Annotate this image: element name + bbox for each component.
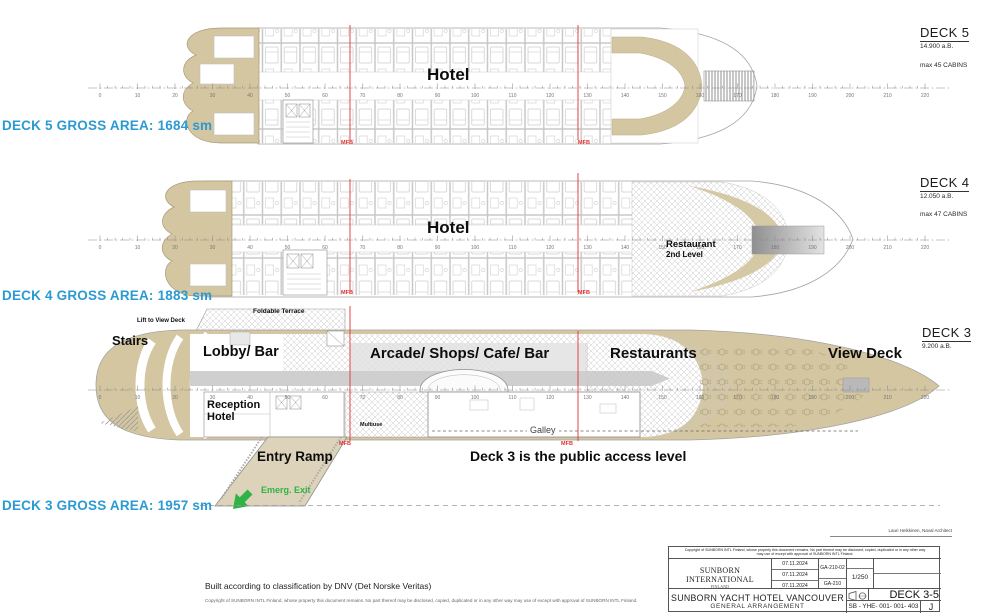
svg-text:120: 120 [546,93,555,99]
svg-text:60: 60 [322,245,328,251]
svg-text:20: 20 [172,395,178,401]
scale-value: 1/250 [847,569,873,587]
svg-text:30: 30 [210,245,216,251]
svg-text:210: 210 [883,93,892,99]
svg-text:150: 150 [658,395,667,401]
svg-text:130: 130 [583,93,592,99]
date-row: 07.11.2024 [772,581,818,589]
svg-text:110: 110 [509,245,517,251]
svg-text:0: 0 [99,93,102,99]
approval-row [874,559,941,574]
deck4-area-label: Hotel [427,219,470,237]
deck3-lobby-label: Lobby/ Bar [203,345,279,360]
svg-text:130: 130 [583,395,592,401]
svg-text:90: 90 [435,395,441,401]
svg-text:180: 180 [771,395,780,401]
svg-text:40: 40 [247,245,253,251]
deck3-restaurants-label: Restaurants [610,346,697,362]
svg-text:210: 210 [883,395,892,401]
svg-text:60: 60 [322,395,328,401]
svg-text:20: 20 [172,93,178,99]
svg-text:150: 150 [658,93,667,99]
doc-number-cell: GA-210-02 GA-210 [819,559,847,589]
deck3-view-deck-label: View Deck [828,346,902,362]
projection-symbol-icon [847,590,869,601]
svg-text:110: 110 [509,93,517,99]
deck4-restaurant-sublabel: 2nd Level [666,251,703,259]
svg-text:10: 10 [135,245,141,251]
deck5-elevation: 14.900 a.B. [920,44,953,51]
svg-text:160: 160 [696,395,705,401]
svg-text:120: 120 [546,245,555,251]
svg-text:50: 50 [285,245,291,251]
svg-text:120: 120 [546,395,555,401]
mfb-marker: MFB [578,291,590,297]
svg-text:50: 50 [285,395,291,401]
svg-text:80: 80 [397,395,403,401]
deck-plans-drawing: 0102030405060708090100110120130140150160… [0,0,988,614]
svg-text:50: 50 [285,93,291,99]
deck5-title: DECK 5 [920,26,969,42]
svg-text:80: 80 [397,245,403,251]
deck4-restaurant-label: Restaurant [666,240,716,250]
deck5-cabin-count: max 45 CABINS [920,63,967,70]
architect-note: Lauri Heikkinen, Naval Architect [830,529,952,537]
mfb-marker: MFB [341,291,353,297]
svg-text:60: 60 [322,93,328,99]
deck3-arcade-label: Arcade/ Shops/ Cafe/ Bar [370,346,549,362]
deck3-reception-label: Reception Hotel [207,400,260,423]
footer-copyright: Copyright of SUNBORN INTL Finland, whose… [205,599,637,604]
title-block-copyright: Copyright of SUNBORN INTL Finland, whose… [669,547,941,559]
deck4-elevation: 12.050 a.B. [920,194,953,201]
approval-row [874,574,941,589]
svg-text:170: 170 [733,395,742,401]
deck3-multiuse-label: Multiuse [360,423,382,429]
svg-text:10: 10 [135,93,141,99]
svg-text:90: 90 [435,245,441,251]
svg-text:200: 200 [846,245,855,251]
deck3-gross-area: DECK 3 GROSS AREA: 1957 sm [2,499,212,513]
svg-text:100: 100 [471,245,480,251]
deck3-title: DECK 3 [922,326,971,342]
mfb-marker: MFB [339,442,351,448]
sheet-name: DECK 3-5 [869,589,941,601]
svg-text:180: 180 [771,245,780,251]
title-block: Copyright of SUNBORN INTL Finland, whose… [668,546,940,612]
svg-text:190: 190 [808,245,817,251]
mfb-marker: MFB [561,442,573,448]
svg-text:0: 0 [99,245,102,251]
date-row: 07.11.2024 [772,570,818,581]
projection-symbol-cell [847,589,869,601]
mfb-marker: MFB [578,141,590,147]
svg-text:140: 140 [621,245,630,251]
svg-text:100: 100 [471,93,480,99]
svg-text:220: 220 [921,245,930,251]
svg-text:220: 220 [921,93,930,99]
deck3-foldable-terrace-label: Foldable Terrace [253,309,305,316]
date-row: 07.11.2024 [772,559,818,570]
svg-text:40: 40 [247,93,253,99]
doc-number-1: GA-210-02 [819,559,846,579]
svg-text:110: 110 [509,395,517,401]
svg-text:190: 190 [808,395,817,401]
svg-text:20: 20 [172,245,178,251]
svg-text:70: 70 [360,395,366,401]
deck3-galley-label: Galley [527,426,559,435]
deck-4-hull: 0102030405060708090100110120130140150160… [88,173,952,297]
drawing-number: SB - YHE- 001- 001- 403 [847,601,921,613]
deck5-area-label: Hotel [427,66,470,84]
deck3-public-access-note: Deck 3 is the public access level [470,449,686,464]
drawing-name: GENERAL ARRANGEMENT [669,603,846,610]
deck4-cabin-count: max 47 CABINS [920,212,967,219]
svg-text:200: 200 [846,93,855,99]
company-name: SUNBORN INTERNATIONAL [669,566,771,584]
deck3-stairs-label: Stairs [112,334,148,348]
scale-cell: 1/250 [847,559,874,589]
svg-text:130: 130 [583,245,592,251]
svg-text:160: 160 [696,93,705,99]
doc-number-2: GA-210 [819,579,846,589]
svg-text:180: 180 [771,93,780,99]
reception-line1: Reception [207,400,260,412]
svg-text:190: 190 [808,93,817,99]
svg-text:90: 90 [435,93,441,99]
svg-text:220: 220 [921,395,930,401]
project-title-cell: SUNBORN YACHT HOTEL VANCOUVER GENERAL AR… [669,589,847,613]
svg-text:10: 10 [135,395,141,401]
project-name: SUNBORN YACHT HOTEL VANCOUVER [669,593,846,603]
revision-letter: J [921,601,941,613]
svg-text:210: 210 [883,245,892,251]
svg-text:30: 30 [210,93,216,99]
company-cell: SUNBORN INTERNATIONAL FINLAND [669,559,772,589]
svg-text:70: 70 [360,245,366,251]
approval-cells [874,559,941,589]
deck3-lift-label: Lift to View Deck [137,318,185,324]
svg-text:170: 170 [733,93,742,99]
classification-note: Built according to classification by DNV… [205,582,431,591]
svg-text:140: 140 [621,93,630,99]
deck3-emerg-exit-label: Emerg. Exit [261,486,311,495]
dates-cell: 07.11.2024 07.11.2024 07.11.2024 [772,559,819,589]
svg-text:100: 100 [471,395,480,401]
scale-header [847,559,873,569]
deck-5-hull: 0102030405060708090100110120130140150160… [88,25,952,144]
svg-text:170: 170 [733,245,742,251]
deck3-entry-ramp-label: Entry Ramp [257,450,333,464]
svg-text:70: 70 [360,93,366,99]
svg-text:200: 200 [846,395,855,401]
deck4-gross-area: DECK 4 GROSS AREA: 1883 sm [2,289,212,303]
svg-text:140: 140 [621,395,630,401]
general-arrangement-sheet: 0102030405060708090100110120130140150160… [0,0,988,614]
deck5-gross-area: DECK 5 GROSS AREA: 1684 sm [2,119,212,133]
deck3-elevation: 9.200 a.B. [922,344,952,351]
svg-text:0: 0 [99,395,102,401]
svg-text:80: 80 [397,93,403,99]
reception-line2: Hotel [207,412,260,424]
mfb-marker: MFB [341,141,353,147]
deck4-title: DECK 4 [920,176,969,192]
